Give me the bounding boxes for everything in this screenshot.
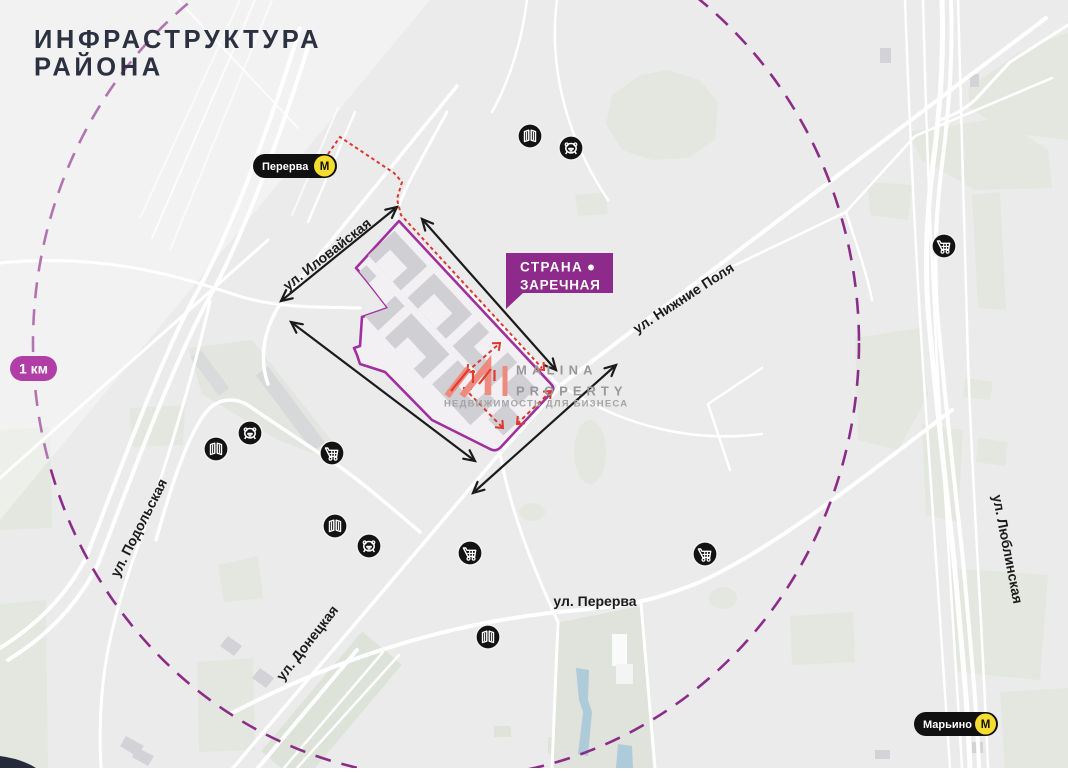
- svg-text:ЗАРЕЧНАЯ: ЗАРЕЧНАЯ: [520, 278, 601, 293]
- svg-text:ул. Перерва: ул. Перерва: [553, 593, 636, 609]
- svg-text:СТРАНА: СТРАНА: [520, 260, 583, 275]
- svg-text:М: М: [981, 719, 991, 731]
- svg-text:РАЙОНА: РАЙОНА: [34, 52, 164, 82]
- svg-text:НЕДВИЖИМОСТЬ ДЛЯ БИЗНЕСА: НЕДВИЖИМОСТЬ ДЛЯ БИЗНЕСА: [444, 399, 628, 410]
- svg-text:1 км: 1 км: [19, 361, 48, 377]
- svg-text:Перерва: Перерва: [262, 161, 309, 173]
- svg-text:Марьино: Марьино: [923, 719, 972, 731]
- svg-text:PROPERTY: PROPERTY: [516, 384, 628, 399]
- svg-text:MALINA: MALINA: [516, 363, 598, 378]
- svg-text:М: М: [320, 161, 330, 173]
- svg-text:ИНФРАСТРУКТУРА: ИНФРАСТРУКТУРА: [34, 26, 322, 54]
